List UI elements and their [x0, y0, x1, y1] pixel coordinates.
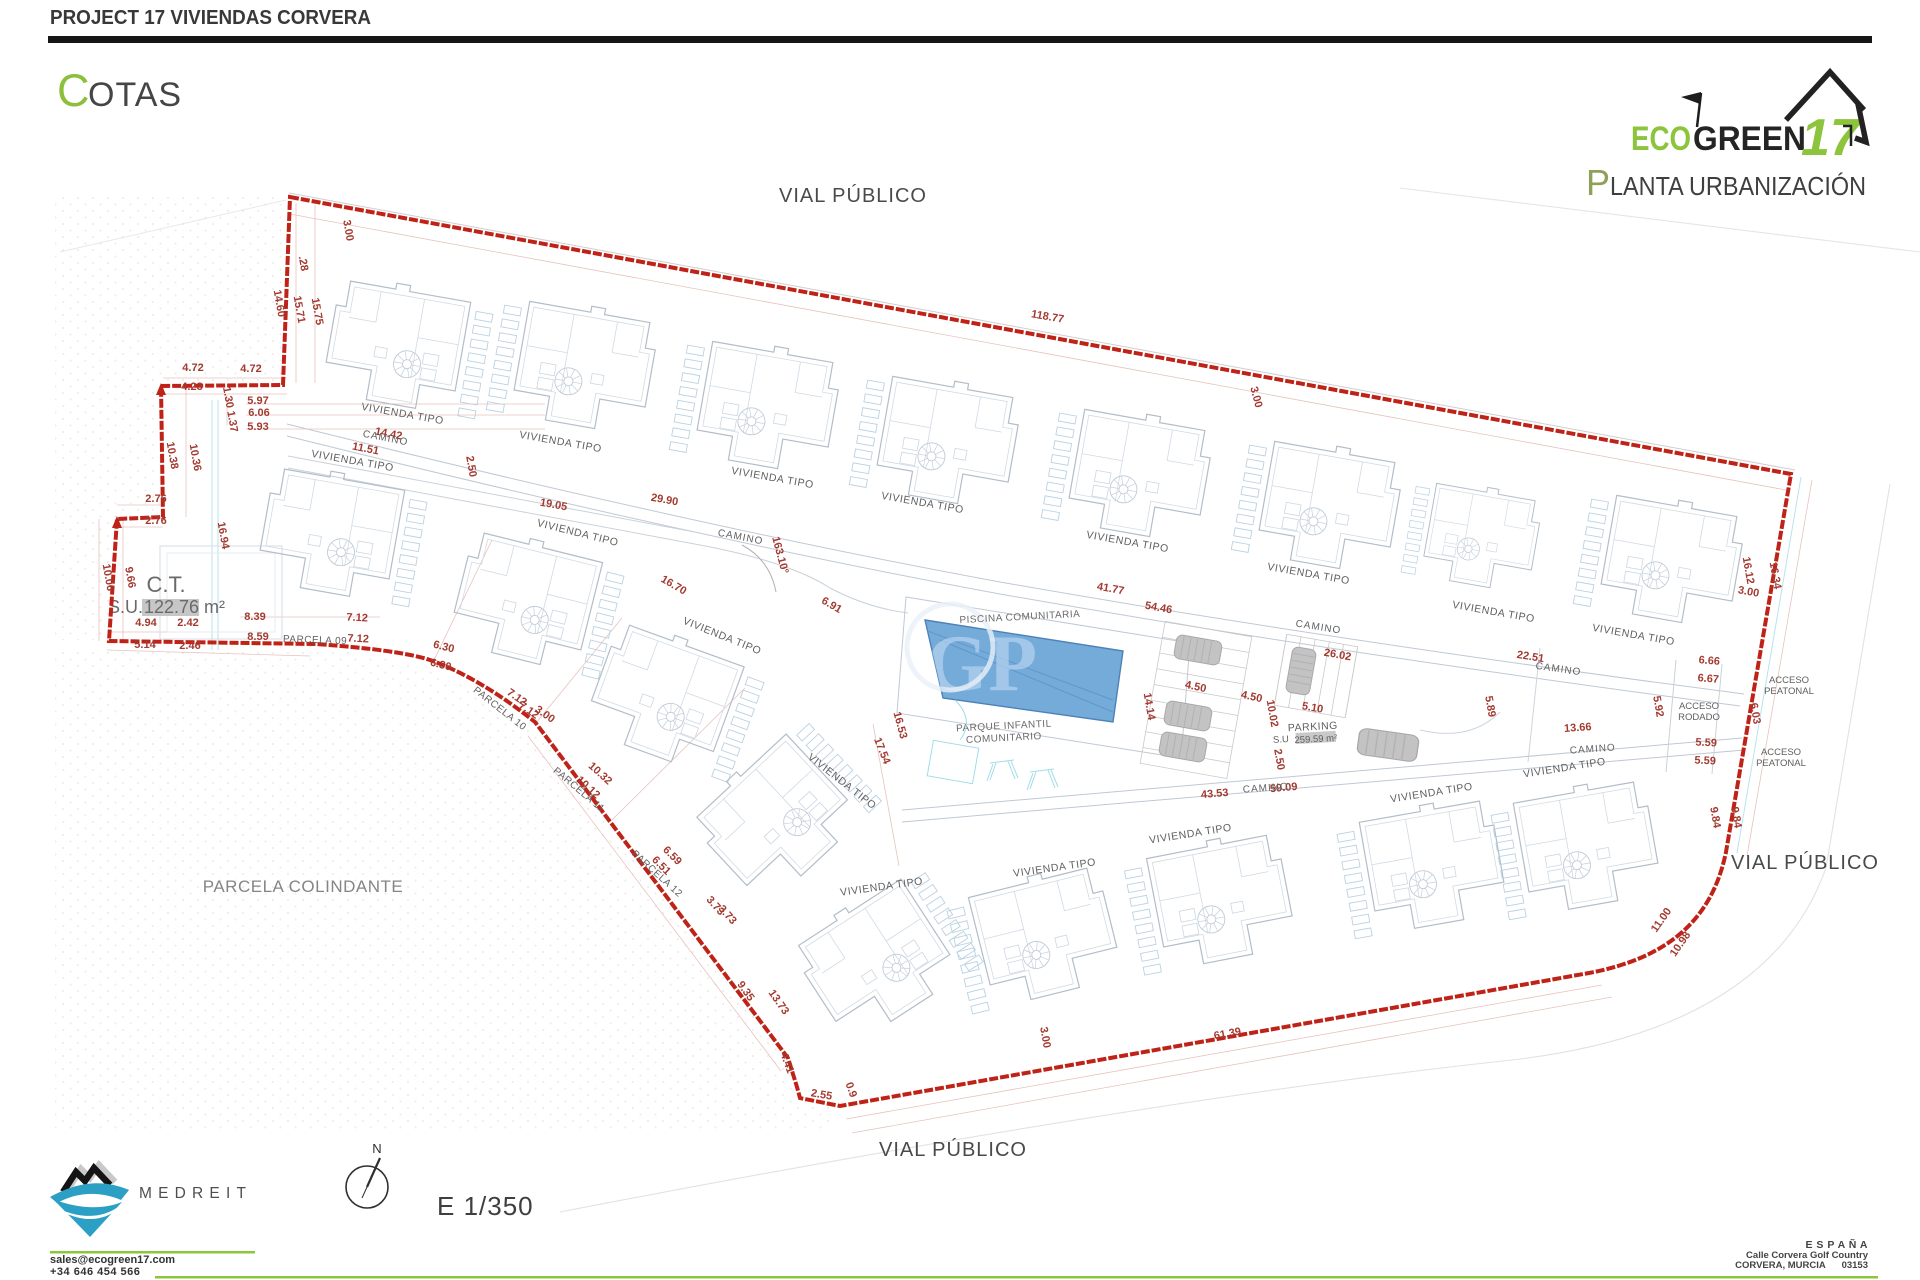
svg-text:N: N	[372, 1141, 381, 1156]
svg-text:13.66: 13.66	[1564, 721, 1592, 735]
svg-text:VIVIENDA TIPO: VIVIENDA TIPO	[1522, 756, 1606, 781]
svg-text:17.54: 17.54	[871, 736, 893, 767]
svg-text:ACCESO: ACCESO	[1679, 701, 1719, 712]
svg-text:4.94: 4.94	[135, 617, 157, 629]
svg-text:RODADO: RODADO	[1678, 712, 1720, 723]
svg-text:LANTA URBANIZACIÓN: LANTA URBANIZACIÓN	[1610, 171, 1866, 201]
svg-text:2.76: 2.76	[145, 515, 166, 527]
svg-text:3.00: 3.00	[1247, 385, 1264, 409]
svg-text:3.00: 3.00	[1037, 1026, 1053, 1049]
svg-text:6.30: 6.30	[432, 639, 456, 656]
svg-text:15.75: 15.75	[309, 297, 326, 326]
svg-text:CAMINO: CAMINO	[1535, 661, 1582, 678]
svg-text:13.73: 13.73	[766, 988, 792, 1017]
svg-text:sales@ecogreen17.com: sales@ecogreen17.com	[50, 1254, 175, 1266]
svg-text:PEATONAL: PEATONAL	[1764, 686, 1814, 697]
svg-text:3.00: 3.00	[340, 219, 356, 242]
svg-text:1.30 1.37: 1.30 1.37	[220, 386, 240, 433]
svg-text:VIVIENDA TIPO: VIVIENDA TIPO	[360, 401, 444, 427]
svg-text:.28: .28	[296, 255, 310, 272]
svg-text:4.72: 4.72	[240, 363, 261, 375]
svg-text:ACCESO: ACCESO	[1761, 747, 1801, 758]
svg-text:15.71: 15.71	[291, 295, 308, 324]
svg-text:163.10°: 163.10°	[769, 535, 790, 575]
svg-text:7.12: 7.12	[346, 611, 368, 624]
svg-text:5.93: 5.93	[247, 421, 268, 433]
svg-text:6.91: 6.91	[819, 595, 844, 616]
svg-text:5.59: 5.59	[1695, 736, 1717, 749]
svg-text:118.77: 118.77	[1030, 308, 1065, 326]
svg-text:7.12: 7.12	[347, 632, 369, 645]
svg-text:VIVIENDA TIPO: VIVIENDA TIPO	[1266, 561, 1350, 587]
svg-text:VIVIENDA TIPO: VIVIENDA TIPO	[1591, 622, 1675, 648]
svg-text:43.53: 43.53	[1201, 787, 1229, 801]
svg-text:VIAL PÚBLICO: VIAL PÚBLICO	[1731, 851, 1879, 874]
svg-text:VIVIENDA TIPO: VIVIENDA TIPO	[880, 490, 964, 516]
svg-text:E 1/350: E 1/350	[437, 1191, 534, 1221]
svg-text:5.59: 5.59	[1694, 754, 1716, 767]
svg-text:PARCELA COLINDANTE: PARCELA COLINDANTE	[203, 877, 403, 896]
svg-text:3.00: 3.00	[1737, 584, 1760, 600]
svg-text:11.00: 11.00	[1649, 906, 1674, 935]
svg-text:VIAL PÚBLICO: VIAL PÚBLICO	[779, 184, 927, 207]
svg-text:10.38: 10.38	[164, 441, 181, 470]
svg-text:54.46: 54.46	[1144, 600, 1173, 617]
svg-text:2.50: 2.50	[463, 455, 479, 478]
svg-text:2.76: 2.76	[145, 493, 166, 505]
svg-text:4.23: 4.23	[181, 381, 202, 393]
svg-text:6.30: 6.30	[429, 657, 453, 674]
svg-text:29.90: 29.90	[650, 492, 679, 509]
svg-text:10.02: 10.02	[1264, 699, 1281, 728]
svg-text:5.10: 5.10	[1301, 700, 1324, 716]
svg-text:VIVIENDA TIPO: VIVIENDA TIPO	[681, 615, 763, 657]
svg-text:4.50: 4.50	[1240, 689, 1263, 705]
svg-text:PROJECT 17 VIVIENDAS CORVERA: PROJECT 17 VIVIENDAS CORVERA	[50, 7, 371, 29]
svg-text:2.46: 2.46	[179, 640, 200, 652]
svg-text:VIVIENDA TIPO: VIVIENDA TIPO	[518, 429, 602, 455]
svg-text:16.12: 16.12	[1740, 556, 1757, 585]
svg-text:VIVIENDA TIPO: VIVIENDA TIPO	[730, 465, 814, 491]
svg-text:VIVIENDA TIPO: VIVIENDA TIPO	[1389, 781, 1473, 806]
svg-text:VIVIENDA TIPO: VIVIENDA TIPO	[1451, 599, 1535, 625]
svg-text:26.02: 26.02	[1323, 647, 1352, 664]
svg-text:CAMINO: CAMINO	[717, 528, 764, 548]
svg-text:VIAL PÚBLICO: VIAL PÚBLICO	[879, 1138, 1027, 1161]
svg-text:P: P	[1586, 162, 1610, 203]
svg-text:61.39: 61.39	[1213, 1026, 1242, 1043]
svg-text:259.59 m²: 259.59 m²	[1294, 733, 1337, 746]
svg-text:VIVIENDA TIPO: VIVIENDA TIPO	[805, 751, 878, 812]
svg-text:19.05: 19.05	[539, 497, 568, 514]
svg-text:CAMINO: CAMINO	[1569, 742, 1616, 756]
svg-text:8.39: 8.39	[244, 611, 265, 623]
svg-text:14.14: 14.14	[1141, 692, 1158, 722]
svg-text:6.66: 6.66	[1698, 654, 1720, 668]
svg-text:5.97: 5.97	[247, 395, 268, 407]
svg-text:2.42: 2.42	[177, 617, 198, 629]
svg-text:PEATONAL: PEATONAL	[1756, 758, 1806, 769]
svg-text:2.50: 2.50	[1271, 748, 1287, 771]
svg-text:VIVIENDA TIPO: VIVIENDA TIPO	[1148, 822, 1232, 847]
svg-text:122.76 m²: 122.76 m²	[144, 597, 225, 617]
svg-text:ECO: ECO	[1631, 120, 1691, 158]
svg-text:4.72: 4.72	[182, 362, 203, 374]
svg-text:9.66: 9.66	[122, 566, 138, 589]
svg-text:5.92: 5.92	[1650, 695, 1666, 718]
svg-text:+34 646 454 566: +34 646 454 566	[50, 1266, 140, 1278]
svg-text:0.9: 0.9	[843, 1081, 860, 1099]
svg-text:S.U: S.U	[1273, 734, 1290, 746]
svg-text:MEDREIT: MEDREIT	[139, 1185, 252, 1202]
svg-text:CORVERA, MURCIA 03153: CORVERA, MURCIA 03153	[1735, 1260, 1868, 1271]
svg-text:ACCESO: ACCESO	[1769, 675, 1809, 686]
svg-text:GREEN: GREEN	[1693, 120, 1806, 158]
svg-text:6.06: 6.06	[248, 407, 269, 419]
svg-text:16.70: 16.70	[659, 573, 689, 597]
svg-text:PARCELA 09: PARCELA 09	[283, 634, 348, 647]
svg-text:8.59: 8.59	[247, 631, 268, 643]
svg-text:5.14: 5.14	[134, 639, 156, 651]
svg-text:C: C	[57, 65, 90, 116]
svg-text:4.50: 4.50	[1184, 679, 1207, 695]
svg-text:10.36: 10.36	[187, 443, 204, 472]
svg-text:GP: GP	[926, 620, 1037, 708]
svg-text:9.84: 9.84	[1707, 806, 1723, 830]
svg-text:OTAS: OTAS	[88, 76, 182, 114]
svg-text:16.34: 16.34	[1767, 561, 1784, 591]
svg-text:10.98: 10.98	[1668, 930, 1694, 959]
svg-text:6.67: 6.67	[1697, 672, 1719, 686]
svg-text:41.77: 41.77	[1096, 581, 1125, 598]
svg-text:5.89: 5.89	[1482, 695, 1498, 718]
svg-text:C.T.: C.T.	[146, 572, 185, 597]
